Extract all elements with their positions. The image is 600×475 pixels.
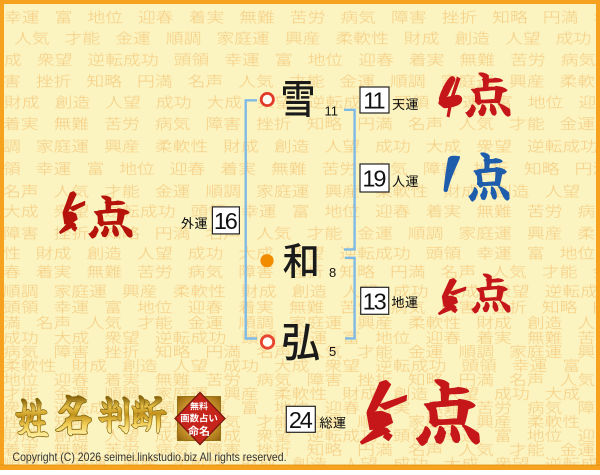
svg-text:5: 5 (329, 344, 336, 359)
svg-text:11: 11 (363, 88, 384, 114)
svg-text:24: 24 (289, 407, 313, 433)
svg-text:8: 8 (329, 265, 336, 280)
svg-text:Copyright (C) 2026 seimei.link: Copyright (C) 2026 seimei.linkstudio.biz… (13, 451, 287, 464)
svg-text:19: 19 (362, 166, 385, 192)
svg-text:11: 11 (325, 104, 339, 119)
svg-text:16: 16 (214, 208, 238, 234)
svg-text:13: 13 (363, 288, 387, 314)
